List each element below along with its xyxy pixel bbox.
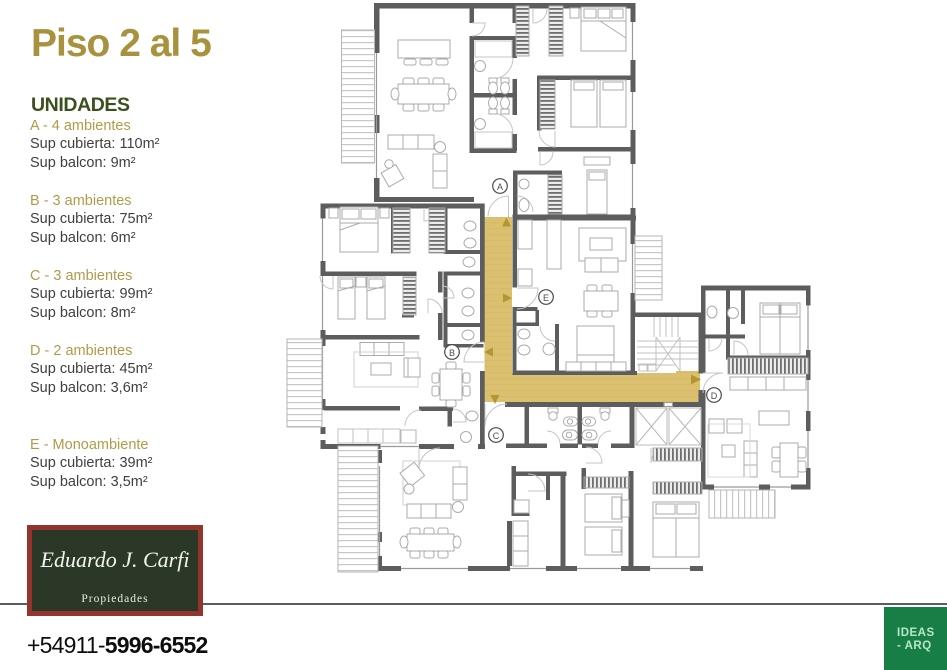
svg-text:C: C	[493, 431, 500, 441]
svg-text:E: E	[543, 293, 549, 303]
svg-text:B: B	[449, 348, 455, 358]
svg-text:A: A	[497, 182, 503, 192]
svg-text:D: D	[711, 391, 718, 401]
